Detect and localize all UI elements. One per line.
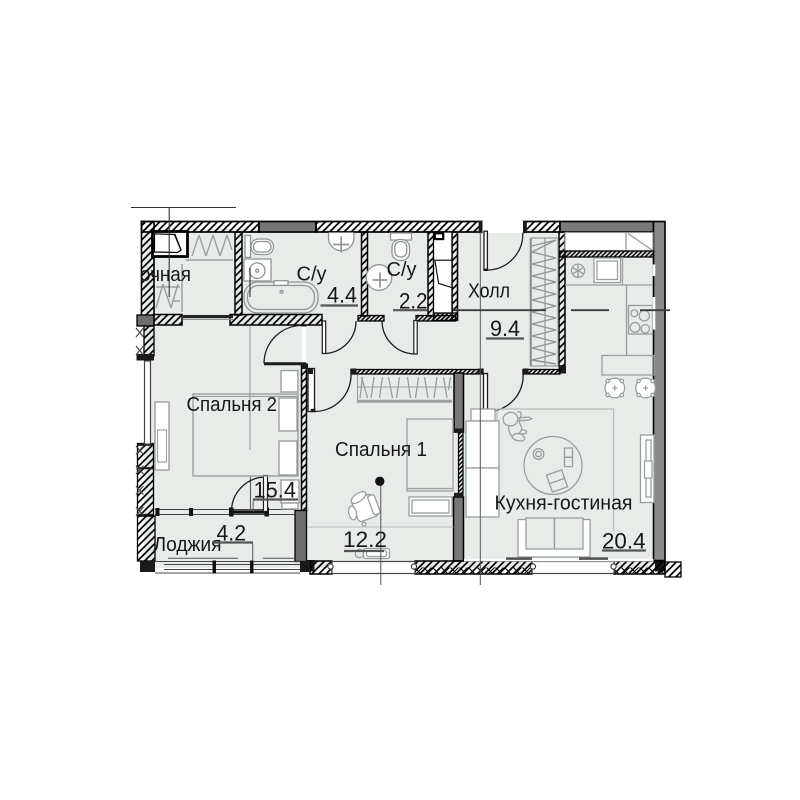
- svg-text:Спальня 2: Спальня 2: [187, 394, 278, 416]
- svg-text:С/у: С/у: [387, 259, 417, 281]
- svg-text:9.4: 9.4: [490, 316, 520, 341]
- svg-text:12.2: 12.2: [343, 527, 387, 552]
- svg-text:Спальня 1: Спальня 1: [335, 439, 427, 461]
- svg-text:Холл: Холл: [468, 281, 510, 303]
- svg-text:4.4: 4.4: [327, 283, 357, 308]
- svg-text:Кухня-гостиная: Кухня-гостиная: [495, 493, 633, 515]
- svg-text:очная: очная: [140, 264, 191, 286]
- svg-text:Лоджия: Лоджия: [154, 534, 222, 556]
- svg-text:С/у: С/у: [297, 264, 327, 286]
